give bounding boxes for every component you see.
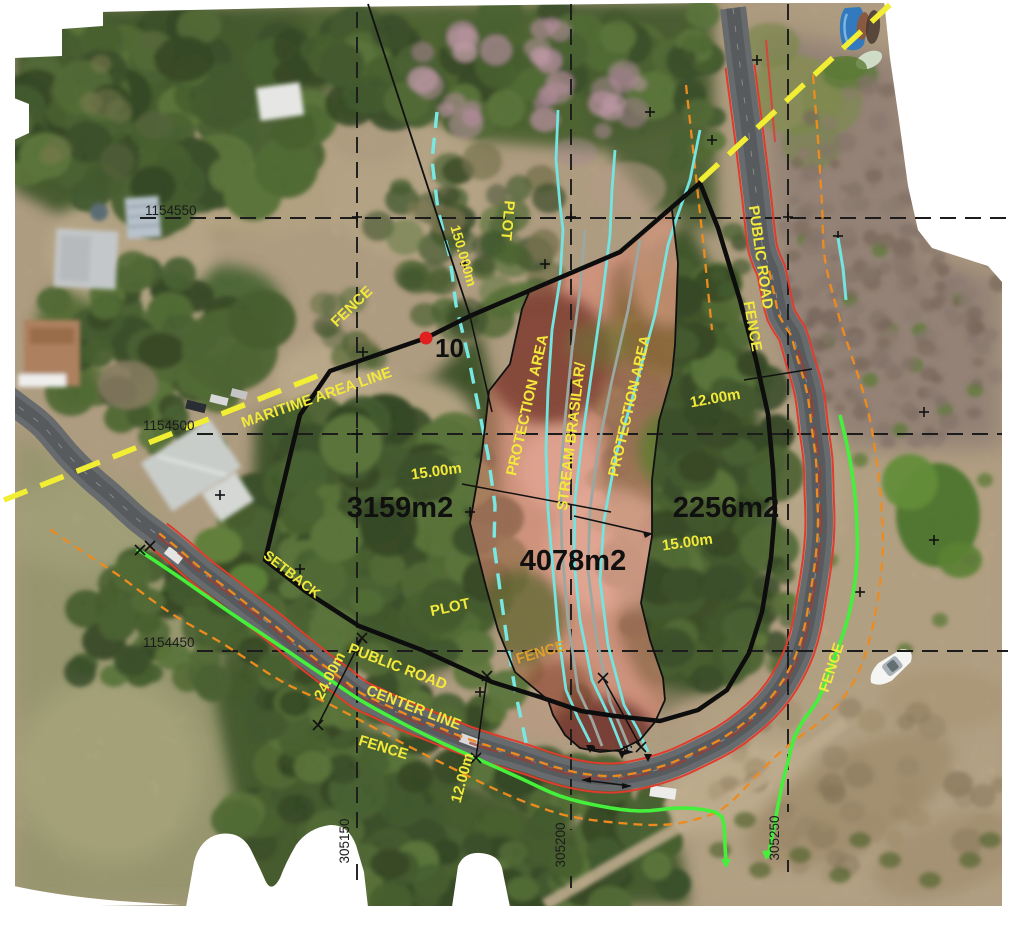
svg-text:PLOT: PLOT (497, 200, 517, 241)
svg-text:1154450: 1154450 (143, 635, 195, 650)
svg-text:1154500: 1154500 (143, 418, 195, 433)
svg-text:2256m2: 2256m2 (673, 492, 779, 524)
svg-text:1154550: 1154550 (145, 203, 197, 218)
svg-text:10: 10 (435, 333, 464, 363)
svg-text:305200: 305200 (553, 822, 568, 867)
svg-text:3159m2: 3159m2 (347, 492, 453, 524)
svg-text:305150: 305150 (337, 818, 352, 863)
svg-text:305250: 305250 (767, 815, 782, 860)
svg-text:4078m2: 4078m2 (520, 545, 626, 577)
